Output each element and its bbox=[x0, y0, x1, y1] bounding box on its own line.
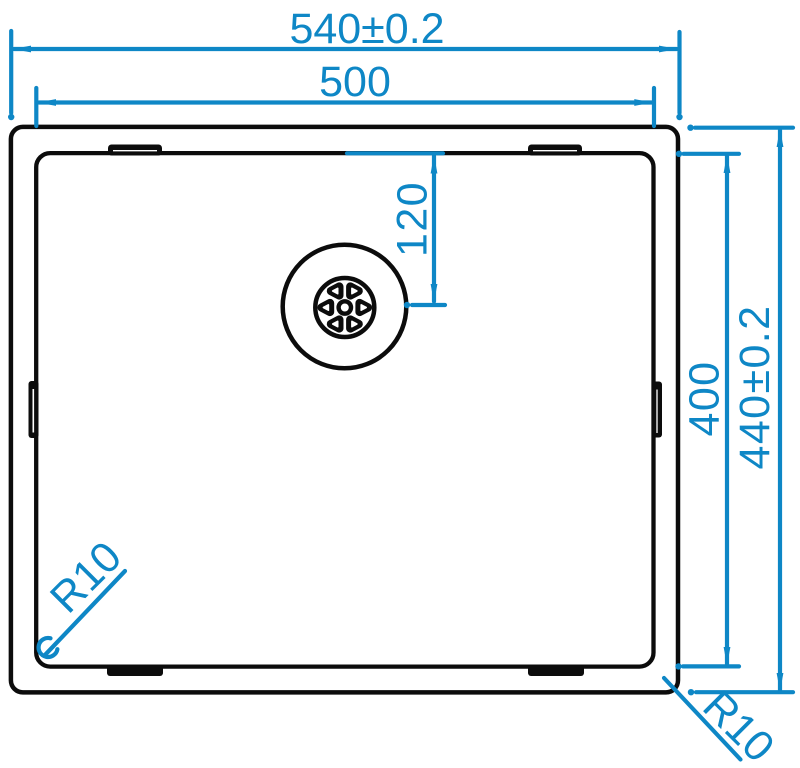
svg-text:400: 400 bbox=[681, 361, 729, 437]
svg-text:500: 500 bbox=[319, 58, 391, 106]
svg-text:120: 120 bbox=[389, 181, 437, 257]
svg-text:540±0.2: 540±0.2 bbox=[289, 5, 444, 53]
svg-text:440±0.2: 440±0.2 bbox=[731, 305, 779, 470]
